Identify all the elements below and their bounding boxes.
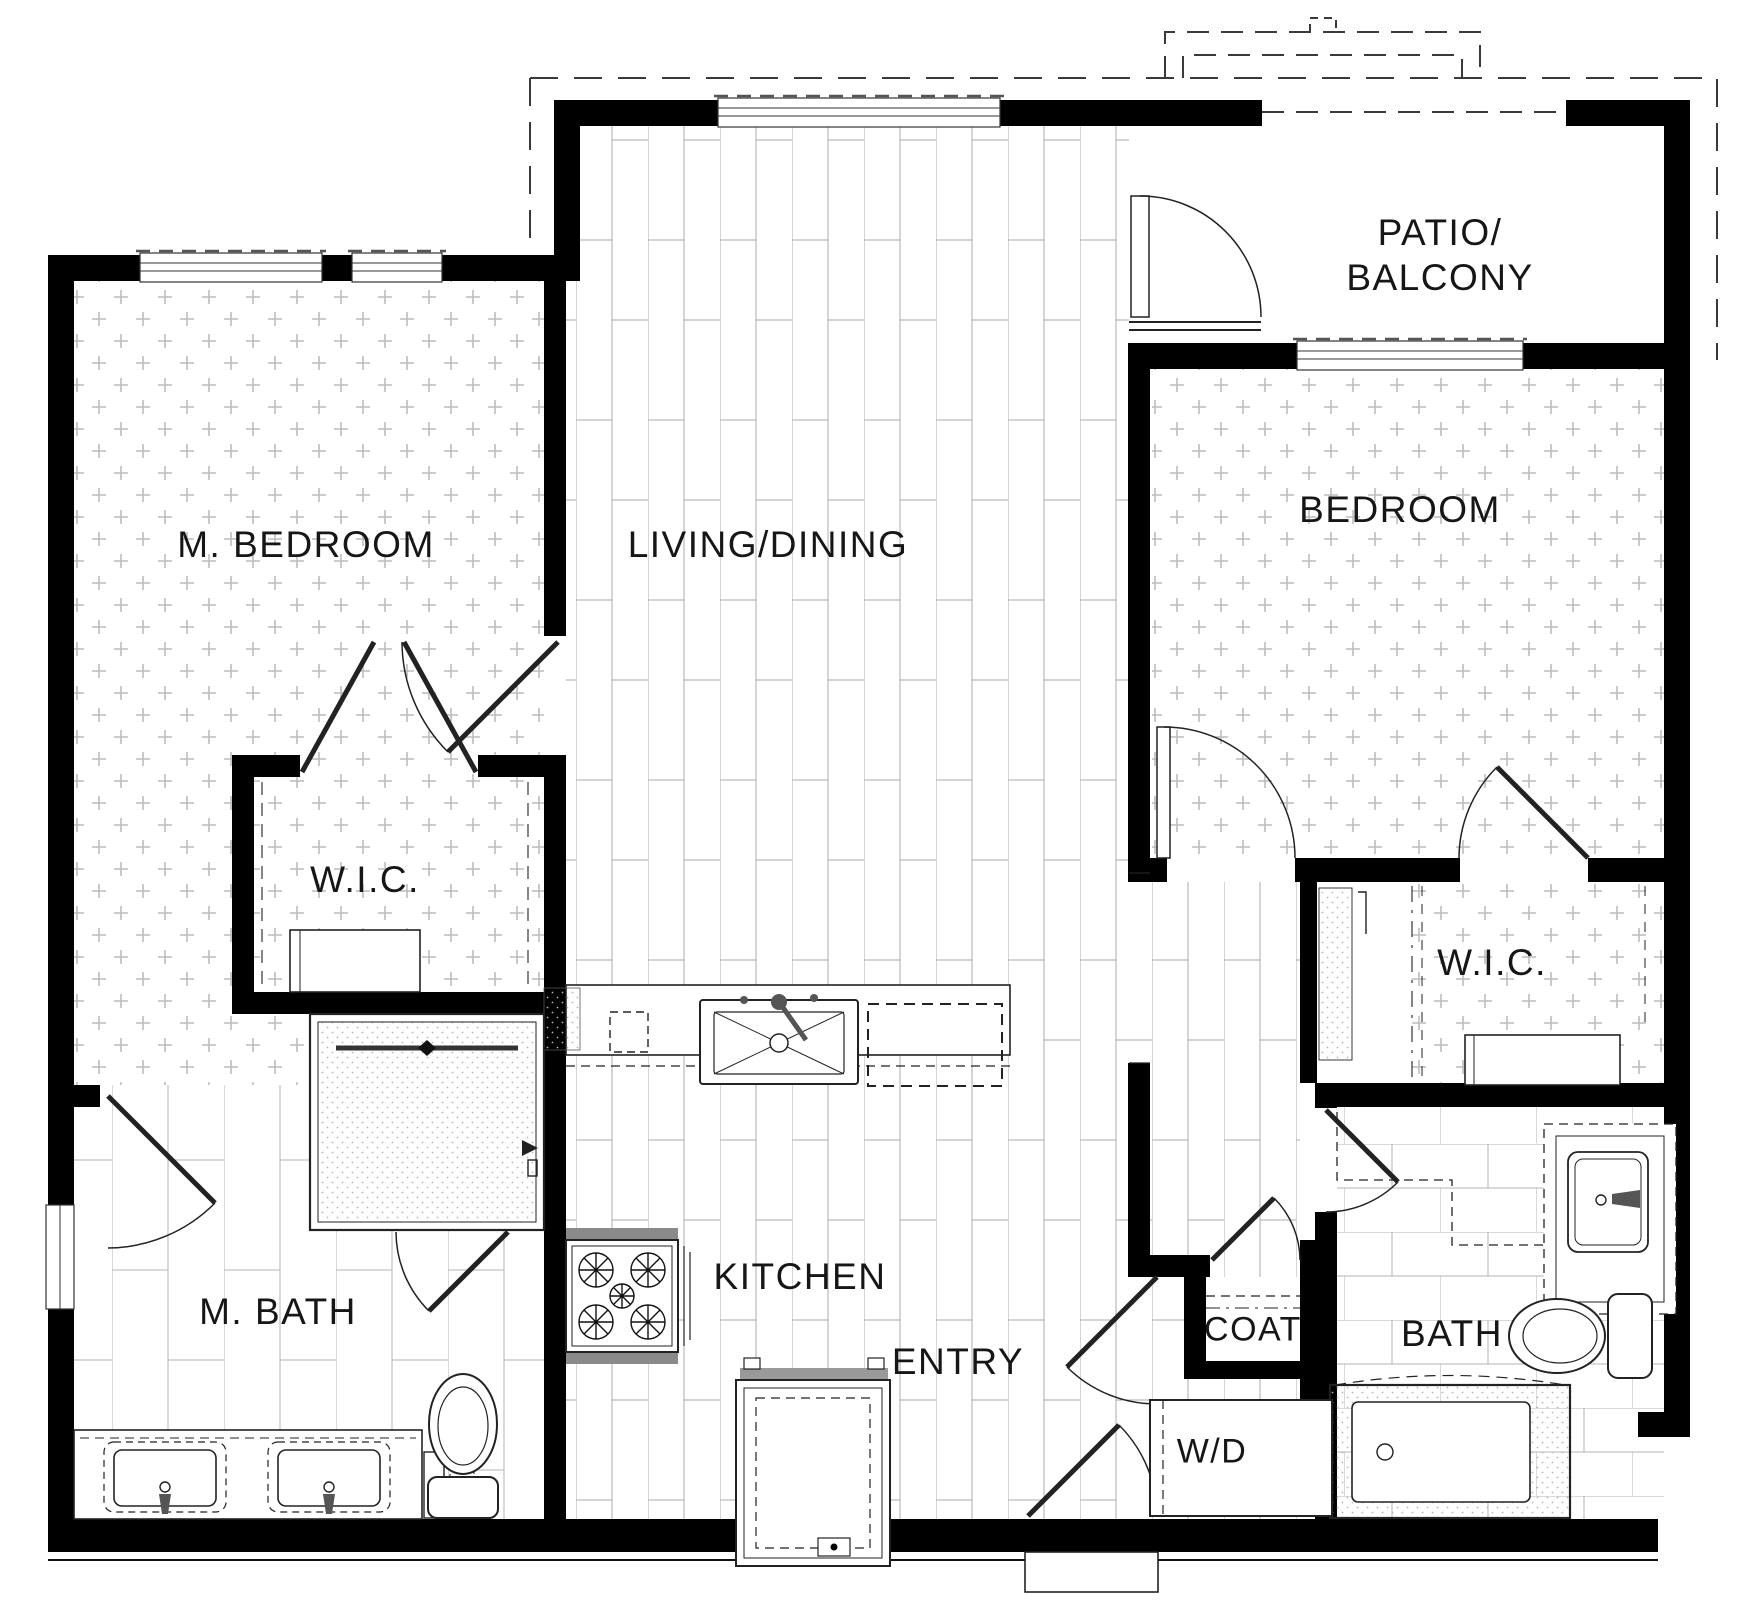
room-label-entry: ENTRY [892,1341,1024,1383]
room-label-m-bedroom: M. BEDROOM [177,524,435,566]
living-bedroom-divider-wall [1128,343,1150,873]
wic-bedroom-bottom-wall [1315,1083,1690,1107]
bedroom-bottom-wall-a [1128,858,1167,882]
master-vanity-sink-right [268,1442,390,1514]
room-label-patio-line2: BALCONY [1346,257,1533,299]
room-label-wd: W/D [1177,1433,1248,1472]
master-toilet [428,1374,498,1518]
room-label-m-bath: M. BATH [199,1291,357,1333]
room-label-wic-master: W.I.C. [310,859,420,901]
patio-door [1129,196,1261,330]
room-label-patio-line1: PATIO/ [1378,212,1503,254]
coat-bottom-wall [1184,1361,1317,1379]
hall-floor [1150,882,1315,1103]
master-bedroom-window-left [136,251,326,282]
exterior-wall-left [48,255,74,1552]
room-label-living-dining: LIVING/DINING [628,524,909,566]
living-left-wall [554,100,580,281]
bath-toilet [1509,1294,1652,1378]
stove [566,1228,690,1364]
refrigerator [736,1358,890,1566]
bathtub [1330,1376,1570,1519]
room-label-coat: COAT [1204,1311,1302,1350]
pantry [544,988,580,1050]
wic-master-top-wall-b [478,755,566,777]
wic-master-bottom-wall [232,992,566,1014]
hall-opening-floor [1129,873,1150,1063]
hall-lower-floor [1150,1103,1300,1277]
coat-top-stub [1128,1255,1210,1277]
master-bedroom-window-right [348,251,446,282]
corner-step-wall [1638,1412,1690,1437]
kitchen-sink [700,994,858,1084]
master-vanity-sink-left [104,1442,226,1514]
patio-right-wall [1664,100,1690,369]
wic-kitchen-bath-wall [544,760,566,1519]
bedroom-bottom-wall-b [1295,858,1460,882]
patio-top-wall-left [1129,100,1262,126]
room-label-wic-bedroom: W.I.C. [1437,942,1547,984]
linen-left-wall [1300,858,1317,1083]
floor-plan: M. BEDROOM LIVING/DINING PATIO/ BALCONY … [0,0,1751,1605]
bedroom-floor [1152,369,1664,858]
master-bath-door-stub [48,1085,100,1107]
room-label-kitchen: KITCHEN [714,1256,887,1298]
shower [310,1014,544,1230]
wic-dresser-bedroom [1465,1035,1620,1085]
wic-dresser-master [290,930,420,992]
master-living-divider-wall [544,281,566,636]
master-vanity [74,1430,474,1519]
living-window [714,96,1004,127]
bedroom-window [1293,339,1527,370]
master-bath-window [46,1205,74,1309]
linen-shelves [1319,888,1366,1060]
bath-left-wall-top [1315,1083,1337,1108]
bedroom-bottom-wall-c [1588,858,1690,882]
room-label-bath: BATH [1401,1313,1503,1355]
room-label-bedroom: BEDROOM [1299,489,1501,531]
door-marker-dot [831,1544,838,1551]
entry-hall-wall [1128,1063,1150,1277]
wic-master-left-wall [232,755,254,1012]
